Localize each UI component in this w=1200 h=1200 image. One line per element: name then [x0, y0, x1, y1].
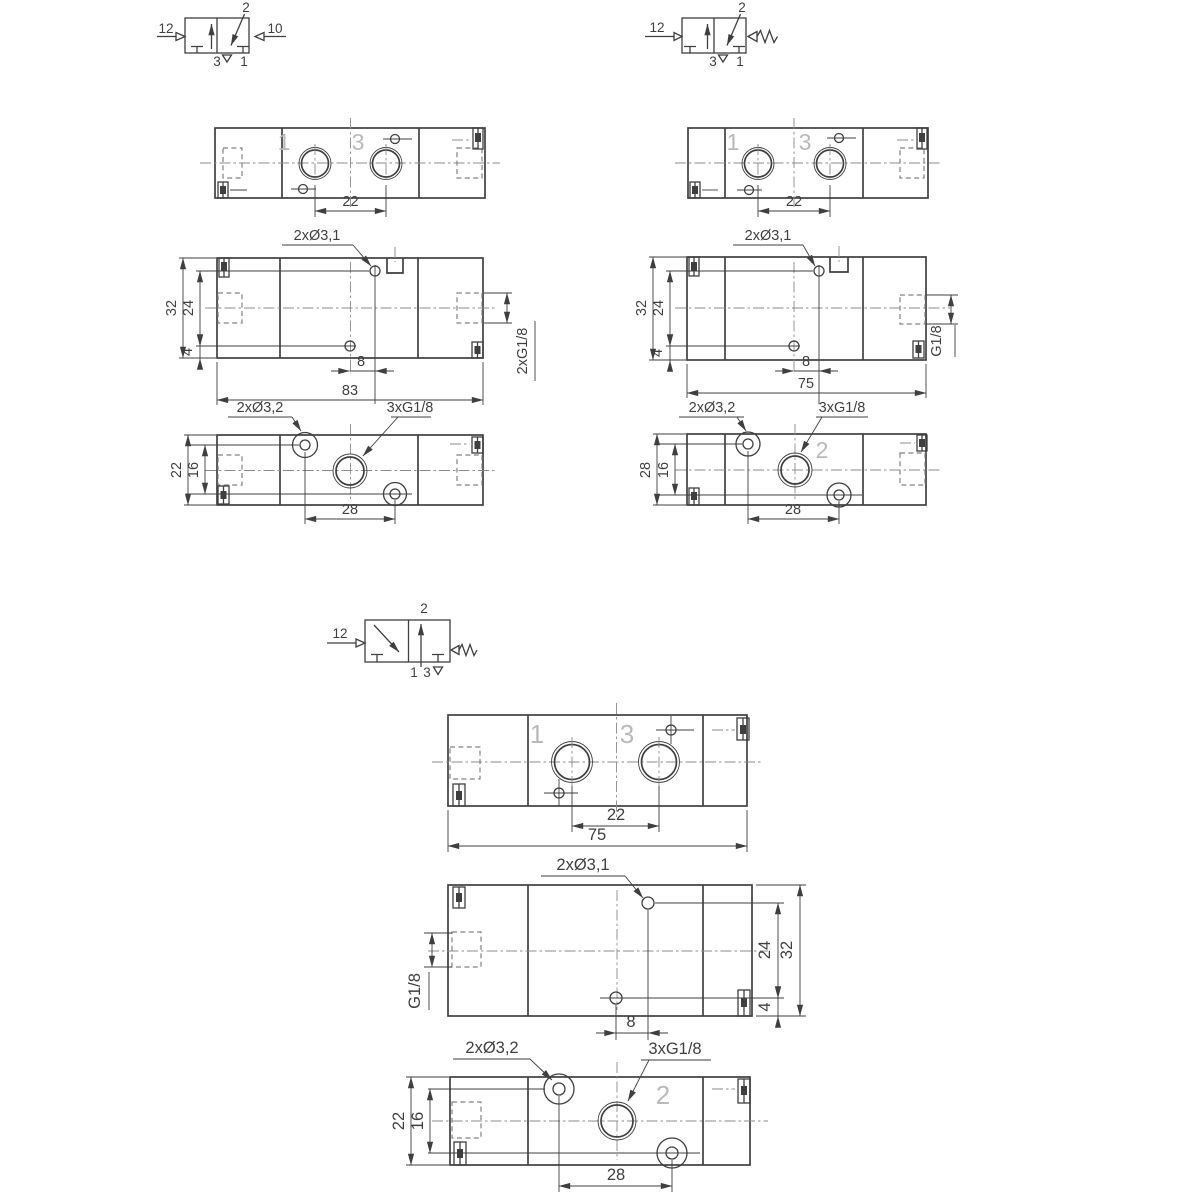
valve-c: 12 2 1 3 1 3 22 — [327, 601, 806, 1192]
port-label-3: 3 — [709, 54, 717, 69]
port-label-1: 1 — [736, 54, 744, 69]
dim-width: 75 — [588, 826, 606, 844]
valve-c-pneumatic-symbol: 12 2 1 3 — [327, 601, 477, 680]
port-label-2: 2 — [420, 601, 428, 616]
mounting-hole — [300, 440, 310, 450]
label-ports: 3xG1/8 — [819, 400, 866, 416]
pilot-triangle-icon — [674, 33, 682, 41]
port-label-1: 1 — [410, 665, 418, 680]
pilot-label-12: 12 — [649, 20, 664, 35]
label-holes: 2xØ3,1 — [556, 856, 609, 874]
blocked-port-icon — [191, 47, 203, 54]
dim-depth: 28 — [638, 462, 654, 478]
dim-hole-bottom: 4 — [650, 349, 666, 357]
port-number-3: 3 — [620, 719, 634, 749]
dim-hole-top: 24 — [181, 300, 197, 316]
spring-seat-icon — [451, 646, 459, 655]
label-holes: 2xØ3,2 — [689, 400, 736, 416]
spring-seat-icon — [748, 32, 757, 42]
dim-port-spacing: 22 — [786, 194, 802, 210]
dim-hole-spacing: 28 — [342, 502, 358, 518]
valve-b-top-view: 1 3 22 — [675, 118, 940, 217]
valve-c-front-view: 2xØ3,1 G1/8 24 32 4 8 — [406, 856, 806, 1040]
valve-a-top-view: 1 3 22 — [200, 118, 500, 217]
valve-b-front-view: 32 24 4 8 75 2xØ3,1 G1/8 — [634, 228, 958, 404]
valve-a: 12 10 2 3 1 1 3 22 — [157, 0, 535, 524]
port-label-3: 3 — [423, 665, 431, 680]
pilot-label-10: 10 — [267, 21, 282, 36]
valve-dimension-drawing: 12 10 2 3 1 1 3 22 — [0, 0, 1200, 1200]
port-label-1: 1 — [240, 54, 248, 69]
port-label-3: 3 — [213, 54, 221, 69]
dim-width: 83 — [342, 383, 358, 399]
hidden-cavity — [218, 455, 242, 485]
dim-hole-rows: 16 — [409, 1112, 427, 1130]
dim-hole-spacing: 28 — [785, 502, 801, 518]
dim-hole-spacing: 28 — [607, 1166, 625, 1184]
valve-c-bottom-view: 2 22 16 28 2xØ3,2 3xG1/8 — [390, 1039, 768, 1192]
dim-height: 32 — [634, 300, 650, 316]
dim-hole-rows: 16 — [656, 462, 672, 478]
dim-hole-top: 24 — [651, 300, 667, 316]
pilot-triangle-icon — [356, 639, 365, 647]
dim-hole-offset: 8 — [626, 1013, 635, 1031]
exhaust-triangle-icon — [223, 55, 232, 62]
valve-a-bottom-view: 22 16 28 2xØ3,2 3xG1/8 — [169, 400, 497, 524]
pilot-triangle-icon — [176, 33, 185, 41]
top-notch — [830, 257, 848, 272]
dim-hole-top: 24 — [756, 941, 774, 959]
dim-depth: 22 — [169, 462, 185, 478]
valve-a-front-view: 32 24 4 8 83 2xØ3,1 2xG1/8 — [164, 228, 535, 405]
blocked-port-icon — [237, 47, 249, 54]
exhaust-triangle-icon — [719, 55, 728, 62]
label-side-port: G1/8 — [406, 973, 424, 1009]
port-number-1: 1 — [530, 719, 544, 749]
hidden-side-port — [900, 295, 925, 324]
dim-hole-offset: 8 — [802, 354, 810, 370]
label-side-ports: 2xG1/8 — [515, 328, 531, 375]
technical-drawing-page: 12 10 2 3 1 1 3 22 — [0, 0, 1200, 1200]
spring-icon — [757, 31, 778, 43]
mounting-hole — [743, 439, 753, 449]
label-ports: 3xG1/8 — [387, 400, 434, 416]
top-notch — [387, 258, 403, 273]
dim-depth: 22 — [390, 1112, 408, 1130]
dim-height: 32 — [164, 300, 180, 316]
valve-b: 12 2 3 1 1 3 22 — [634, 0, 958, 524]
port-number-3: 3 — [799, 129, 812, 155]
pilot-label-12: 12 — [332, 626, 347, 641]
pilot-hole — [642, 897, 654, 909]
flow-arrow-icon — [727, 14, 741, 46]
dim-hole-bottom: 4 — [756, 1002, 774, 1011]
port-label-2: 2 — [738, 0, 746, 15]
label-ports: 3xG1/8 — [648, 1040, 701, 1058]
label-holes: 2xØ3,2 — [237, 400, 284, 416]
dim-port-spacing: 22 — [342, 194, 358, 210]
label-holes: 2xØ3,2 — [465, 1039, 518, 1057]
pilot-triangle-icon — [255, 33, 264, 41]
valve-c-top-view: 1 3 22 75 — [432, 703, 762, 852]
dim-width: 75 — [798, 376, 814, 392]
port-number-3: 3 — [352, 129, 365, 155]
label-holes: 2xØ3,1 — [294, 228, 341, 244]
label-side-port: G1/8 — [929, 325, 945, 356]
valve-b-pneumatic-symbol: 12 2 3 1 — [645, 0, 778, 69]
flow-arrow-icon — [231, 14, 245, 46]
hidden-side-port — [452, 932, 481, 967]
dim-height: 32 — [778, 941, 796, 959]
port-number-2: 2 — [816, 437, 829, 463]
port-number-2: 2 — [656, 1080, 670, 1110]
port-number-1: 1 — [278, 129, 291, 155]
hidden-cavity — [457, 455, 482, 485]
blocked-port-icon — [733, 47, 745, 54]
port-2-bore — [336, 457, 364, 485]
port-number-1: 1 — [727, 129, 740, 155]
hidden-cavity — [900, 453, 925, 485]
dim-port-spacing: 22 — [607, 806, 625, 824]
mounting-hole — [553, 1083, 565, 1095]
valve-a-pneumatic-symbol: 12 10 2 3 1 — [157, 0, 286, 69]
dim-hole-bottom: 4 — [180, 348, 196, 356]
port-label-2: 2 — [242, 0, 250, 15]
dim-hole-rows: 16 — [186, 462, 202, 478]
label-holes: 2xØ3,1 — [745, 228, 792, 244]
hidden-cavity — [450, 747, 480, 779]
dim-hole-offset: 8 — [357, 354, 365, 370]
blocked-port-icon — [432, 655, 444, 663]
exhaust-triangle-icon — [434, 667, 443, 675]
flow-arrow-icon — [374, 625, 399, 652]
pilot-label-12: 12 — [158, 21, 173, 36]
hidden-cavity — [452, 1102, 481, 1138]
spring-icon — [459, 645, 477, 656]
blocked-port-icon — [684, 47, 696, 54]
blocked-port-icon — [371, 655, 383, 663]
valve-b-bottom-view: 2 28 16 28 2xØ3,2 3xG1/8 — [638, 400, 940, 524]
